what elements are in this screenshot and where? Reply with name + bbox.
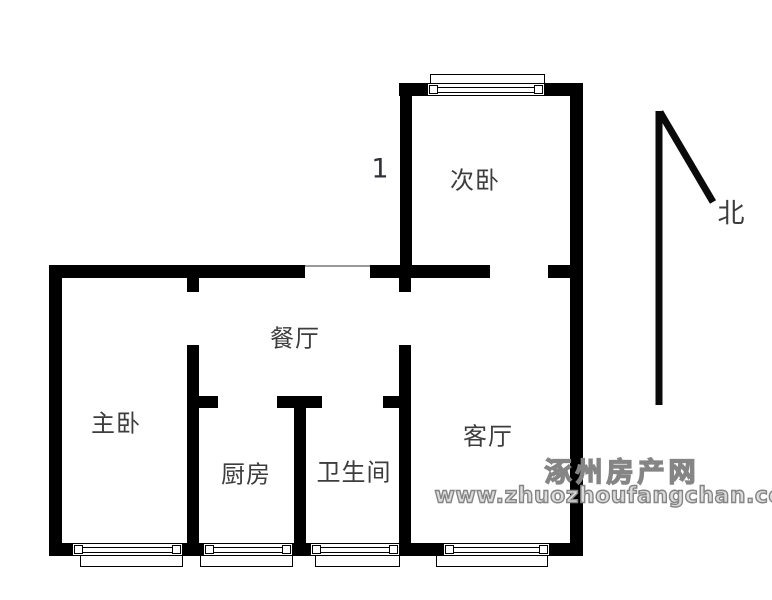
window-glass-icon (453, 547, 540, 553)
window-glass-icon (437, 87, 535, 93)
wall-middle-center-segment (370, 265, 490, 278)
window-glass-icon (213, 547, 283, 553)
window-jamb-icon (539, 545, 548, 554)
room-label-kitchen: 厨房 (221, 455, 271, 490)
window-jamb-icon (389, 545, 398, 554)
wall-master-dining-stub (187, 265, 199, 292)
wall-kitchen-bath-divider (294, 396, 306, 556)
window-bathroom (310, 543, 400, 556)
north-arrow-icon (630, 98, 760, 418)
unit-number-label: 1 (371, 154, 388, 185)
wall-secondary-bedroom-left (400, 83, 412, 275)
window-sill-master-bedroom (80, 555, 183, 567)
wall-outer-left (49, 265, 62, 556)
wall-middle-left-segment (49, 265, 305, 278)
window-jamb-icon (282, 545, 291, 554)
wall-middle-right-segment (548, 265, 583, 278)
window-sill-bathroom (315, 555, 400, 567)
window-living-room (443, 543, 550, 556)
north-label: 北 (718, 192, 745, 231)
window-jamb-icon (534, 85, 543, 94)
wall-dining-living-stub (399, 265, 411, 292)
wall-bathroom-top-right (383, 396, 411, 408)
window-glass-icon (82, 547, 173, 553)
room-label-living-room: 客厅 (463, 417, 513, 452)
window-glass-icon (320, 547, 390, 553)
window-jamb-icon (172, 545, 181, 554)
room-label-bathroom: 卫生间 (317, 453, 392, 488)
window-secondary-bedroom (427, 83, 545, 96)
watermark-site-url: www.zhuozhoufangchan.com (435, 484, 772, 509)
floor-plan: 次卧 主卧 餐厅 厨房 卫生间 客厅 1 北 涿州房产网 www.zhuozho… (0, 0, 772, 600)
room-label-secondary-bedroom: 次卧 (450, 161, 500, 196)
room-label-master-bedroom: 主卧 (91, 404, 141, 439)
window-kitchen (203, 543, 293, 556)
window-sill-living-room (436, 555, 548, 567)
wall-dining-living-main (399, 345, 411, 556)
wall-kitchen-top-left (187, 396, 218, 408)
window-master-bedroom (72, 543, 183, 556)
room-label-dining-room: 餐厅 (270, 319, 320, 354)
wall-opening-line (305, 265, 370, 267)
window-sill-kitchen (200, 555, 293, 567)
wall-master-dining-main (187, 345, 199, 556)
